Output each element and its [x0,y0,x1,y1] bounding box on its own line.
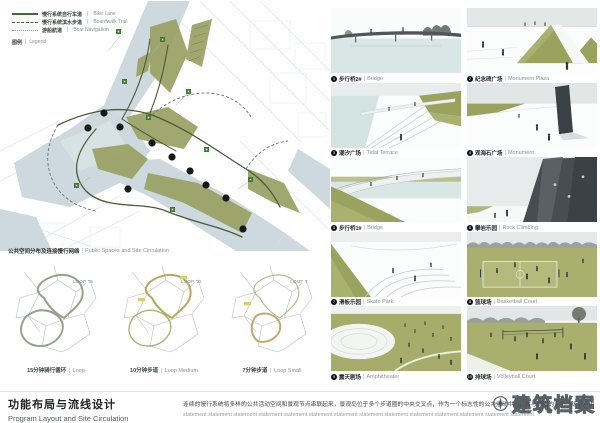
render-caption: 2 纪念碑广场 | Monument Plaza [467,75,597,83]
render-caption: 1 步行桥2# | Bridge [331,75,461,83]
loop-diagrams: LOOP 15 15分钟骑行循环 | Loop LOOP 10 10分钟步道 |… [2,258,328,374]
loop-label-en: Loop Small [274,368,302,374]
gallery-item-monument-plaza: 2 纪念碑广场 | Monument Plaza [467,8,597,83]
page-title-block: 功能布局与流线设计 Program Layout and Site Circul… [8,396,128,423]
render-caption: 3 潮汐广场 | Tidal Terrace [331,149,461,157]
legend-item: 游船航道 | Boat Navigation [12,26,128,34]
render-thumbnail [331,157,461,222]
gallery-item-rock-climbing: 6 攀岩乐园 | Rock Climbing [467,157,597,232]
loop-label-cn: 10分钟步道 [130,368,158,374]
render-thumbnail [467,8,597,73]
caption-separator: | [363,299,364,305]
map-caption-separator: | [82,248,83,254]
caption-en: Rock Climbing [502,225,537,231]
loop-label-cn: 15分钟骑行循环 [27,368,66,374]
render-caption: 5 步行桥1# | Bridge [331,224,461,232]
loop-badge: LOOP 7 [282,278,316,284]
item-marker-icon: 8 [467,299,473,305]
loop-badge: LOOP 15 [66,278,100,284]
caption-en: Bridge [367,76,383,82]
loop-diagram-15min: LOOP 15 15分钟骑行循环 | Loop [2,258,110,374]
loop-diagram-7min: LOOP 7 7分钟步道 | Loop Small [218,258,326,374]
legend-label-en: Bike Lane [93,11,115,17]
legend-separator: | [67,27,68,33]
legend-separator: | [87,11,88,17]
caption-cn: 步行桥2# [339,75,362,83]
map-caption: 公共空间分布及连接慢行网络 | Public Spaces and Site C… [8,247,169,255]
loop-network-illustration [6,258,106,364]
item-marker-icon: 1 [331,76,337,82]
boat-route-line-icon [12,30,38,31]
legend-item: 慢行系统滨水步道 | Boardwalk Trail [12,18,128,26]
caption-en: Monument [508,150,534,156]
render-caption: 10 排球场 | Volleyball Court [467,373,597,381]
watermark: 建筑档案 [492,390,596,417]
loop-network-illustration [114,258,214,364]
caption-separator: | [499,225,500,231]
legend-label-cn: 慢行系统滨水步道 [42,19,82,26]
loop-label: 15分钟骑行循环 | Loop [2,366,110,374]
gallery-item-basketball: 8 篮球场 | Basketball Court [467,232,597,307]
legend-separator: | [25,39,26,45]
render-thumbnail [331,8,461,73]
render-caption: 4 观海石广场 | Monument [467,149,597,157]
gallery-item-bridge1: 5 步行桥1# | Bridge [331,157,461,232]
item-marker-icon: 7 [331,299,337,305]
render-thumbnail [467,83,597,148]
render-thumbnail [467,157,597,222]
gallery-item-monument: 4 观海石广场 | Monument [467,83,597,158]
caption-en: Amphitheater [366,374,399,380]
map-caption-cn: 公共空间分布及连接慢行网络 [8,247,80,255]
legend-title-en: Legend [29,39,46,45]
caption-separator: | [363,374,364,380]
map-caption-en: Public Spaces and Site Circulation [85,248,169,254]
legend-title-cn: 图例 [12,39,22,46]
caption-en: Basketball Court [497,299,537,305]
watermark-text: 建筑档案 [512,390,596,417]
gallery-item-skate-park: 7 滑板乐园 | Skate Park [331,232,461,307]
render-caption: 6 攀岩乐园 | Rock Climbing [467,224,597,232]
site-plan-map: 慢行系统自行车道 | Bike Lane 慢行系统滨水步道 | Boardwal… [0,0,330,252]
legend-label-cn: 游船航道 [42,27,62,34]
item-marker-icon: 4 [467,150,473,156]
loop-label-en: Loop [73,368,85,374]
item-marker-icon: 9 [331,374,337,380]
caption-cn: 纪念碑广场 [475,75,503,83]
item-marker-icon: 5 [331,225,337,231]
loop-label: 10分钟步道 | Loop Medium [110,366,218,374]
gallery-item-bridge2: 1 步行桥2# | Bridge [331,8,461,83]
legend-separator: | [87,19,88,25]
bike-lane-line-icon [12,13,38,15]
page-title: 功能布局与流线设计 [8,396,128,412]
render-caption: 9 露天剧场 | Amphitheater [331,373,461,381]
item-marker-icon: 2 [467,76,473,82]
render-caption: 8 篮球场 | Basketball Court [467,298,597,306]
caption-separator: | [364,76,365,82]
caption-cn: 滑板乐园 [339,298,361,306]
render-caption: 7 滑板乐园 | Skate Park [331,298,461,306]
caption-cn: 攀岩乐园 [475,224,497,232]
item-marker-icon: 3 [331,150,337,156]
legend-title: 图例 | Legend [12,38,128,46]
caption-cn: 潮汐广场 [339,149,361,157]
render-thumbnail [467,306,597,371]
render-thumbnail [467,232,597,297]
legend-item: 慢行系统自行车道 | Bike Lane [12,10,128,18]
caption-en: Tidal Terrace [366,150,398,156]
render-gallery: 1 步行桥2# | Bridge [331,8,597,381]
gallery-item-tidal-terrace: 3 潮汐广场 | Tidal Terrace [331,83,461,158]
map-legend: 慢行系统自行车道 | Bike Lane 慢行系统滨水步道 | Boardwal… [12,10,128,46]
loop-label-separator: | [69,368,70,374]
boardwalk-line-icon [12,22,38,23]
caption-en: Volleyball Court [497,374,535,380]
loop-badge-label: LOOP 15 [66,279,100,284]
legend-label-en: Boardwalk Trail [93,19,127,25]
item-marker-icon: 10 [467,374,473,380]
caption-cn: 篮球场 [475,298,492,306]
loop-badge-label: LOOP 7 [282,279,316,284]
loop-label-cn: 7分钟步道 [242,368,267,374]
render-thumbnail [331,306,461,371]
caption-en: Monument Plaza [508,76,549,82]
loop-badge-label: LOOP 10 [174,279,208,284]
loop-label-separator: | [270,368,271,374]
caption-cn: 露天剧场 [339,373,361,381]
page-subtitle: Program Layout and Site Circulation [8,414,128,423]
loop-label: 7分钟步道 | Loop Small [218,366,326,374]
gallery-item-amphitheater: 9 露天剧场 | Amphitheater [331,306,461,381]
loop-badge: LOOP 10 [174,278,208,284]
gallery-item-volleyball: 10 排球场 | Volleyball Court [467,306,597,381]
caption-separator: | [363,150,364,156]
loop-label-separator: | [161,368,162,374]
compass-icon [492,395,509,412]
render-thumbnail [331,232,461,297]
legend-label-cn: 慢行系统自行车道 [42,11,82,18]
render-thumbnail [331,83,461,148]
caption-separator: | [505,76,506,82]
caption-separator: | [494,299,495,305]
loop-label-en: Loop Medium [165,368,198,374]
caption-separator: | [364,225,365,231]
caption-cn: 步行桥1# [339,224,362,232]
item-marker-icon: 6 [467,225,473,231]
caption-separator: | [505,150,506,156]
caption-cn: 排球场 [475,373,492,381]
caption-en: Skate Park [366,299,393,305]
legend-label-en: Boat Navigation [73,27,108,33]
caption-cn: 观海石广场 [475,149,503,157]
loop-diagram-10min: LOOP 10 10分钟步道 | Loop Medium [110,258,218,374]
caption-en: Bridge [367,225,383,231]
caption-separator: | [494,374,495,380]
loop-network-illustration [222,258,322,364]
